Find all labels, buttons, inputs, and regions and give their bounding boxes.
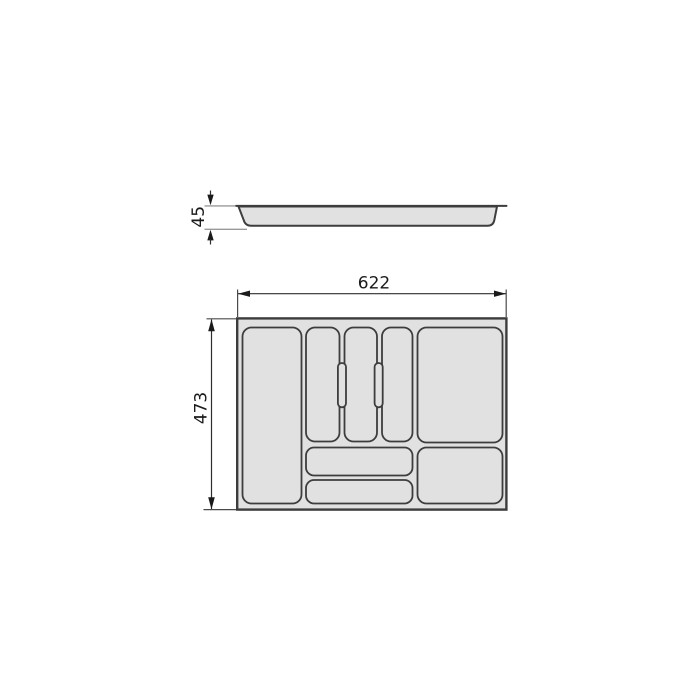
depth-dim-arrow-up-icon	[208, 319, 215, 331]
divider-pill-2	[375, 363, 383, 407]
top-plan-view: 622 473	[192, 274, 507, 510]
height-dim-arrow-up-icon	[207, 230, 213, 241]
width-dim-label: 622	[358, 274, 390, 294]
compartment-vertical-1	[306, 328, 340, 442]
compartment-horizontal-2	[306, 480, 413, 504]
compartment-horizontal-1	[306, 448, 413, 476]
compartment-right-large	[418, 328, 503, 443]
width-dimension: 622	[238, 274, 507, 318]
side-profile-view: 45	[189, 191, 507, 245]
depth-dimension: 473	[192, 319, 237, 510]
tray-profile-body	[239, 207, 498, 226]
depth-dim-arrow-down-icon	[208, 497, 215, 509]
compartment-vertical-2	[345, 328, 378, 442]
drawing-canvas: 45 622	[0, 0, 700, 700]
height-dim-arrow-down-icon	[207, 195, 213, 206]
cutlery-tray-technical-drawing: 45 622	[0, 0, 700, 700]
height-dimension: 45	[189, 191, 214, 245]
compartment-vertical-3	[382, 328, 413, 442]
divider-pill-1	[338, 363, 346, 407]
compartment-left-tall	[243, 328, 302, 504]
width-dim-arrow-left-icon	[238, 291, 250, 297]
width-dim-arrow-right-icon	[494, 291, 506, 297]
compartment-bottom-right	[418, 448, 503, 504]
height-dim-label: 45	[189, 206, 209, 228]
depth-dim-label: 473	[192, 392, 212, 424]
